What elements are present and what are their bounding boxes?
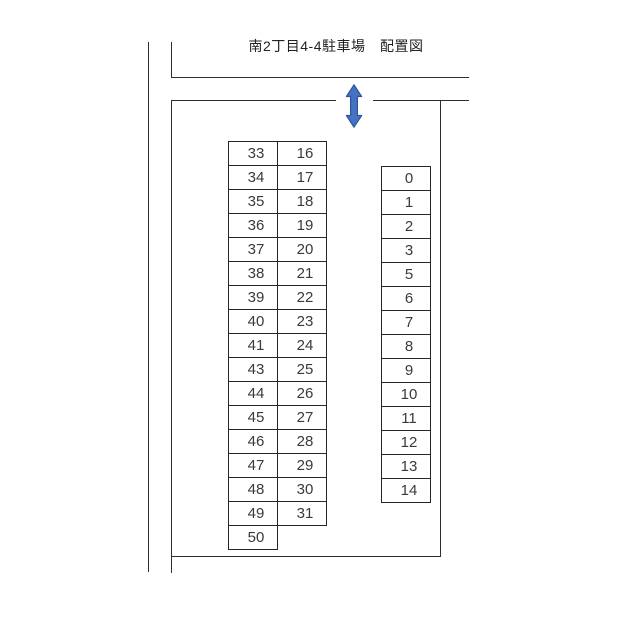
parking-space-cell: 41: [228, 333, 278, 358]
parking-space-cell: 29: [277, 453, 327, 478]
parking-space-cell: 5: [381, 262, 431, 287]
parking-space-cell: 47: [228, 453, 278, 478]
parking-space-cell: 0: [381, 166, 431, 191]
right-boundary-line: [440, 100, 441, 557]
parking-space-cell: 33: [228, 141, 278, 166]
parking-space-cell: 44: [228, 381, 278, 406]
parking-space-cell: 50: [228, 525, 278, 550]
parking-space-cell: 21: [277, 261, 327, 286]
parking-space-cell: 19: [277, 213, 327, 238]
parking-space-cell: 8: [381, 334, 431, 359]
parking-space-cell: 22: [277, 285, 327, 310]
parking-space-cell: 49: [228, 501, 278, 526]
parking-space-cell: 10: [381, 382, 431, 407]
two-way-arrow-icon: [345, 84, 363, 128]
parking-space-cell: 1: [381, 190, 431, 215]
parking-space-cell: 3: [381, 238, 431, 263]
road-left-inner-lower-line: [171, 100, 172, 573]
parking-space-cell: 18: [277, 189, 327, 214]
parking-space-cell: 35: [228, 189, 278, 214]
parking-space-cell: 12: [381, 430, 431, 455]
bottom-boundary-line: [171, 556, 441, 557]
entrance-edge-left-line: [171, 100, 336, 101]
diagram-title: 南2丁目4-4駐車場 配置図: [171, 36, 501, 56]
parking-block-left: 3316341735183619372038213922402341244325…: [228, 141, 327, 550]
parking-space-cell: 16: [277, 141, 327, 166]
parking-space-cell: 17: [277, 165, 327, 190]
top-boundary-line: [171, 77, 469, 78]
parking-space-cell: 20: [277, 237, 327, 262]
parking-space-cell: 31: [277, 501, 327, 526]
parking-space-cell: 38: [228, 261, 278, 286]
parking-space-cell: 7: [381, 310, 431, 335]
parking-space-cell: 48: [228, 477, 278, 502]
road-left-inner-upper-line: [171, 42, 172, 78]
parking-space-cell: 36: [228, 213, 278, 238]
parking-space-cell: 14: [381, 478, 431, 503]
parking-space-cell: 34: [228, 165, 278, 190]
parking-space-cell: 9: [381, 358, 431, 383]
parking-space-cell: 37: [228, 237, 278, 262]
parking-space-cell: 43: [228, 357, 278, 382]
parking-space-cell: 27: [277, 405, 327, 430]
parking-layout-diagram: 南2丁目4-4駐車場 配置図 3316341735183619372038213…: [0, 0, 640, 640]
parking-space-cell: 24: [277, 333, 327, 358]
parking-space-cell: 40: [228, 309, 278, 334]
parking-space-cell: 2: [381, 214, 431, 239]
parking-space-cell: 46: [228, 429, 278, 454]
parking-space-cell: 30: [277, 477, 327, 502]
parking-space-cell: 45: [228, 405, 278, 430]
parking-space-cell: 13: [381, 454, 431, 479]
entrance-edge-right-line: [373, 100, 469, 101]
parking-space-cell: 26: [277, 381, 327, 406]
road-left-outer-line: [148, 42, 149, 572]
parking-space-cell: 25: [277, 357, 327, 382]
parking-space-cell: 39: [228, 285, 278, 310]
parking-space-cell: 23: [277, 309, 327, 334]
parking-space-cell: 28: [277, 429, 327, 454]
parking-space-cell: 11: [381, 406, 431, 431]
parking-space-cell: 6: [381, 286, 431, 311]
parking-block-right: 0123567891011121314: [381, 166, 431, 503]
